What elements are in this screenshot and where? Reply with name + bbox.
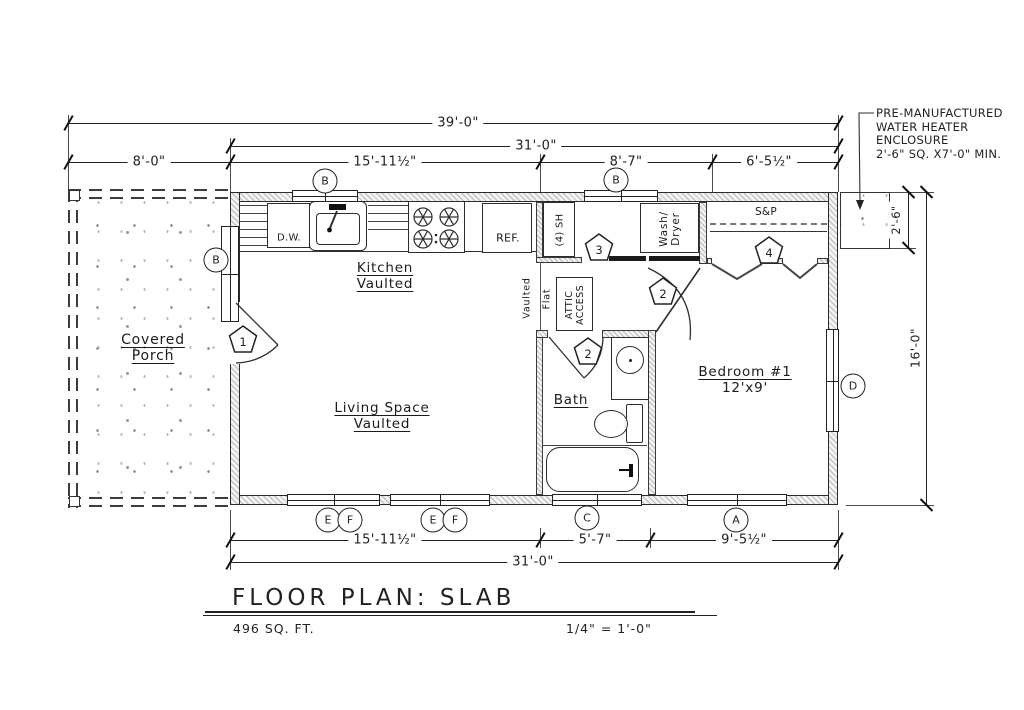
room-label-porch: Covered Porch (121, 332, 185, 364)
window-tag-living1-f-label: F (347, 514, 353, 527)
closet-shelves-label: (4) SH (555, 213, 566, 246)
window-bedroom-east (826, 329, 839, 432)
dim-kitchen-label: 15'-11½" (348, 155, 421, 170)
dishwasher: D.W. (267, 203, 310, 248)
living-label-line2: Vaulted (334, 416, 429, 432)
dim-closet-label: 6'-5½" (741, 155, 797, 170)
window-tag-kitchen: B (313, 169, 338, 194)
room-label-bath: Bath (554, 392, 589, 408)
scale-label: 1/4" = 1'-0" (566, 621, 652, 636)
ceiling-label-vaulted: Vaulted (522, 277, 533, 318)
wall-bath-east (648, 330, 656, 495)
closet-shelves: (4) SH (543, 202, 575, 257)
wall-shelf-closet-south (536, 257, 582, 263)
wall-closet-south-a (707, 258, 712, 264)
window-tag-bath-label: C (583, 512, 591, 525)
porch-post (69, 190, 80, 201)
window-tag-porch-wall: B (204, 248, 229, 273)
water-heater-enclosure (840, 192, 890, 249)
porch-roof-line (68, 197, 233, 199)
door-tag-laundry-label: 3 (585, 239, 614, 261)
closet-pole-line (710, 223, 827, 225)
note-water-heater: PRE-MANUFACTURED WATER HEATER ENCLOSURE … (876, 107, 1003, 161)
ceiling-label-flat: Flat (542, 289, 553, 310)
attic-access-label-1: ATTIC (564, 285, 575, 325)
window-tag-living2-f-label: F (452, 514, 458, 527)
kitchen-label-line1: Kitchen (357, 260, 414, 276)
washer-dryer-label-2: Dryer (670, 211, 682, 247)
attic-access-label: ATTIC ACCESS (564, 285, 586, 325)
porch-label-line2: Porch (121, 348, 185, 364)
door-tag-entry-label: 1 (229, 331, 258, 353)
washer-dryer-label: Wash/ Dryer (658, 211, 682, 247)
extension-line (888, 248, 916, 249)
window-tag-hall: B (604, 168, 629, 193)
window-tag-hall-label: B (612, 174, 620, 187)
window-tag-bath: C (575, 506, 600, 531)
extension-line (838, 115, 839, 192)
note-line-1: PRE-MANUFACTURED (876, 107, 1003, 121)
window-tag-bedroom-south-label: A (732, 514, 740, 527)
attic-access-label-2: ACCESS (575, 285, 586, 325)
range (408, 201, 465, 253)
door-tag-laundry: 3 (585, 233, 614, 261)
window-living-1 (287, 494, 380, 506)
door-tag-bedroom: 2 (649, 277, 678, 305)
wall-closet-south-c (817, 258, 828, 264)
wall-bath-west (536, 330, 543, 495)
title-underline-2 (203, 615, 717, 616)
closet-shelf-line (710, 231, 827, 232)
dim-water-heater-line (908, 192, 909, 248)
door-tag-closet: 4 (755, 236, 784, 264)
dim-porch-label: 8'-0" (128, 155, 171, 170)
window-tag-living1-e-label: E (325, 514, 332, 527)
tub-faucet-spout (619, 469, 631, 471)
bedroom-label-line1: Bedroom #1 (698, 364, 791, 380)
laundry-doors (609, 256, 700, 261)
toilet-tank (626, 404, 643, 443)
porch-roof-line (68, 505, 233, 507)
kitchen-sink-basin (316, 213, 360, 245)
refrigerator-label: REF. (496, 232, 520, 245)
door-tag-entry: 1 (229, 325, 258, 353)
door-tag-bedroom-label: 2 (649, 283, 678, 305)
dim-house-bottom-label: 31'-0" (507, 555, 558, 570)
extension-line (68, 115, 69, 192)
porch-roof-line (68, 497, 233, 499)
shelf-pole-label: S&P (755, 206, 777, 218)
vanity-drain (629, 359, 632, 362)
attic-access: ATTIC ACCESS (556, 277, 593, 331)
refrigerator: REF. (482, 203, 532, 253)
room-label-kitchen: Kitchen Vaulted (357, 260, 414, 292)
window-living-2 (390, 494, 490, 506)
note-line-4: 2'-6" SQ. x7'-0" MIN. (876, 148, 1003, 162)
drawing-title: FLOOR PLAN: SLAB (232, 585, 515, 611)
note-line-2: WATER HEATER (876, 121, 1003, 135)
tub-alcove-line (543, 445, 647, 446)
door-tag-bath: 2 (574, 337, 603, 365)
dim-bedroom-bottom-label: 9'-5½" (716, 533, 772, 548)
window-bath (552, 494, 642, 506)
wall-bath-north-a (536, 330, 548, 338)
room-label-living: Living Space Vaulted (334, 400, 429, 432)
area-label: 496 SQ. FT. (233, 621, 315, 636)
dim-height-line (926, 192, 927, 505)
dim-living-bottom-label: 15'-11½" (348, 533, 421, 548)
bifold-doors-icon (712, 264, 817, 279)
kitchen-label-line2: Vaulted (357, 276, 414, 292)
dishwasher-label: D.W. (277, 233, 301, 244)
dim-house-top-label: 31'-0" (510, 139, 561, 154)
door-tag-closet-label: 4 (755, 242, 784, 264)
window-tag-living2-e-label: E (430, 514, 437, 527)
note-line-3: ENCLOSURE (876, 134, 1003, 148)
window-tag-bedroom-east-label: D (849, 380, 857, 393)
window-hall (584, 190, 658, 202)
washer-dryer: Wash/ Dryer (640, 203, 699, 253)
window-tag-living2-f: F (443, 508, 468, 533)
porch-post (69, 496, 80, 507)
window-tag-porch-wall-label: B (212, 254, 220, 267)
window-tag-kitchen-label: B (321, 175, 329, 188)
window-tag-living1-f: F (338, 508, 363, 533)
toilet-bowl (594, 410, 628, 438)
window-tag-bedroom-east: D (841, 374, 866, 399)
floor-plan-page: 39'-0" 31'-0" 8'-0" 15'-11½" 8'-7" 6'-5½… (0, 0, 1024, 710)
dim-bath-bottom-label: 5'-7" (574, 533, 617, 548)
wall-laundry-east (699, 202, 707, 264)
porch-label-line1: Covered (121, 332, 185, 348)
dim-height-label: 16'-0" (908, 324, 923, 372)
cabinet-lines (240, 205, 268, 247)
porch-roof-line (76, 189, 78, 508)
door-tag-bath-label: 2 (574, 343, 603, 365)
dim-overall-label: 39'-0" (432, 116, 483, 131)
window-tag-bedroom-south: A (724, 508, 749, 533)
porch-roof-line (68, 189, 70, 508)
dim-water-heater-label: 2'-6" (889, 201, 903, 238)
bedroom-label-line2: 12'x9' (698, 380, 791, 396)
room-label-bedroom: Bedroom #1 12'x9' (698, 364, 791, 396)
porch-roof-line (68, 189, 233, 191)
title-underline (205, 611, 695, 613)
window-bedroom-south (687, 494, 787, 506)
washer-dryer-label-1: Wash/ (658, 211, 670, 247)
laundry-doors-gap (646, 256, 649, 261)
extension-line (846, 505, 934, 506)
wall-hall-west (536, 202, 543, 262)
window-porch-wall (221, 226, 239, 322)
cabinet-lines (368, 205, 410, 231)
living-label-line1: Living Space (334, 400, 429, 416)
